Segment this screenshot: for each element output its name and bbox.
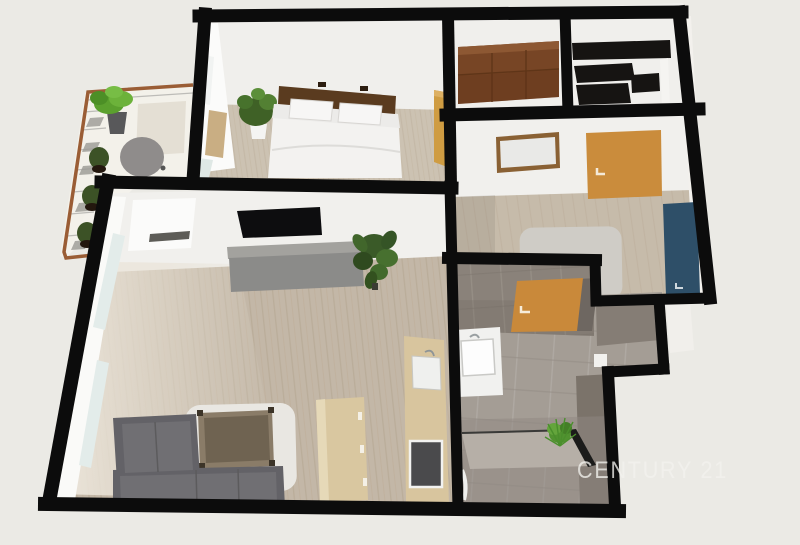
- svg-text:CENTURY 21: CENTURY 21: [577, 457, 728, 484]
